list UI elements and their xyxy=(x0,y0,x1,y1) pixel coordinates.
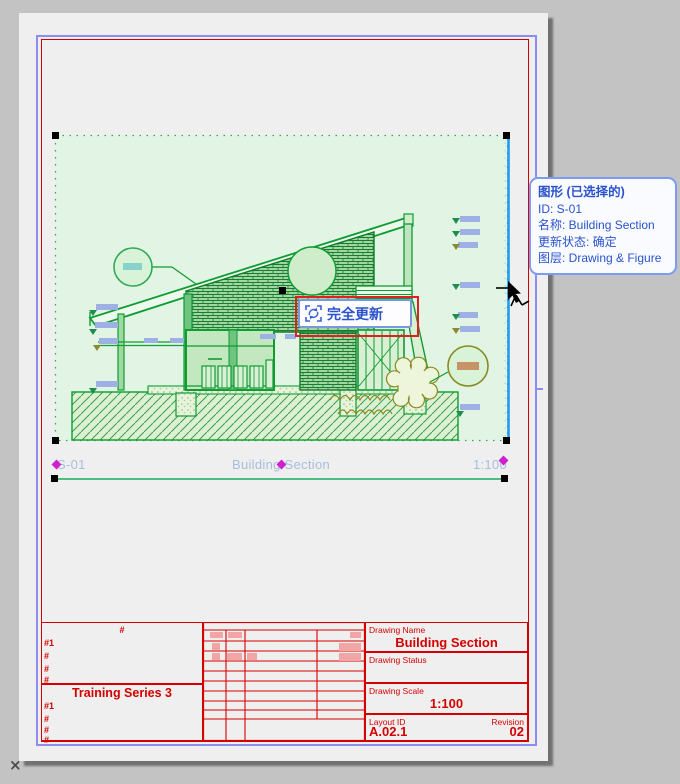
tb-drawing-name-label: Drawing Name xyxy=(369,625,527,635)
titleblock-revision-table xyxy=(203,622,365,741)
table-placeholder-marks xyxy=(210,632,361,661)
tb-layout-id-value: A.02.1 xyxy=(369,724,407,739)
tb-drawing-scale-label: Drawing Scale xyxy=(369,686,527,696)
cursor-arrow xyxy=(494,276,534,312)
wall-circle-opening xyxy=(288,247,336,295)
tooltip-line-status: 更新状态: 确定 xyxy=(538,234,668,251)
origin-cross-mark: × xyxy=(9,756,22,774)
tb-drawing-status-label: Drawing Status xyxy=(369,655,527,665)
full-update-icon xyxy=(305,305,322,322)
tb-drawing-scale-value: 1:100 xyxy=(366,696,527,711)
tooltip-line-name: 名称: Building Section xyxy=(538,217,668,234)
tb-row2-label-0: #1 xyxy=(44,700,54,713)
title-line-handle-left[interactable] xyxy=(51,475,58,482)
tooltip-line-layer: 图层: Drawing & Figure xyxy=(538,250,668,267)
full-update-label: 完全更新 xyxy=(327,304,383,324)
tb-hash-header: # xyxy=(41,624,203,637)
full-update-button[interactable]: 完全更新 xyxy=(298,299,412,328)
drawing-scale-text[interactable]: 1:100 xyxy=(420,457,507,472)
tooltip-line-id: ID: S-01 xyxy=(538,201,668,218)
tb-drawing-name-value: Building Section xyxy=(366,635,527,650)
tb-series-title: Training Series 3 xyxy=(41,686,203,700)
title-line-handle-right[interactable] xyxy=(501,475,508,482)
tb-row1-label-0: #1 xyxy=(44,637,54,650)
tooltip-title: 图形 (已选择的) xyxy=(538,184,668,201)
tb-cell-drawing-scale: Drawing Scale 1:100 xyxy=(365,683,528,714)
layout-window: { "window": { "background_color": "#c3c3… xyxy=(0,0,680,784)
element-info-tooltip: 图形 (已选择的) ID: S-01 名称: Building Section … xyxy=(529,177,677,275)
tb-revision-value: 02 xyxy=(510,724,524,739)
drawing-title-line[interactable] xyxy=(54,478,506,480)
frame-guide-tick xyxy=(537,388,543,390)
tb-row2-label-3: # xyxy=(44,734,49,747)
tb-cell-drawing-status: Drawing Status xyxy=(365,652,528,683)
tb-cell-layout-id: Layout ID Revision A.02.1 02 xyxy=(365,714,528,741)
building-section-drawing[interactable] xyxy=(48,128,522,460)
tb-row1-label-1: # xyxy=(44,650,49,663)
tb-cell-drawing-name: Drawing Name Building Section xyxy=(365,622,528,652)
